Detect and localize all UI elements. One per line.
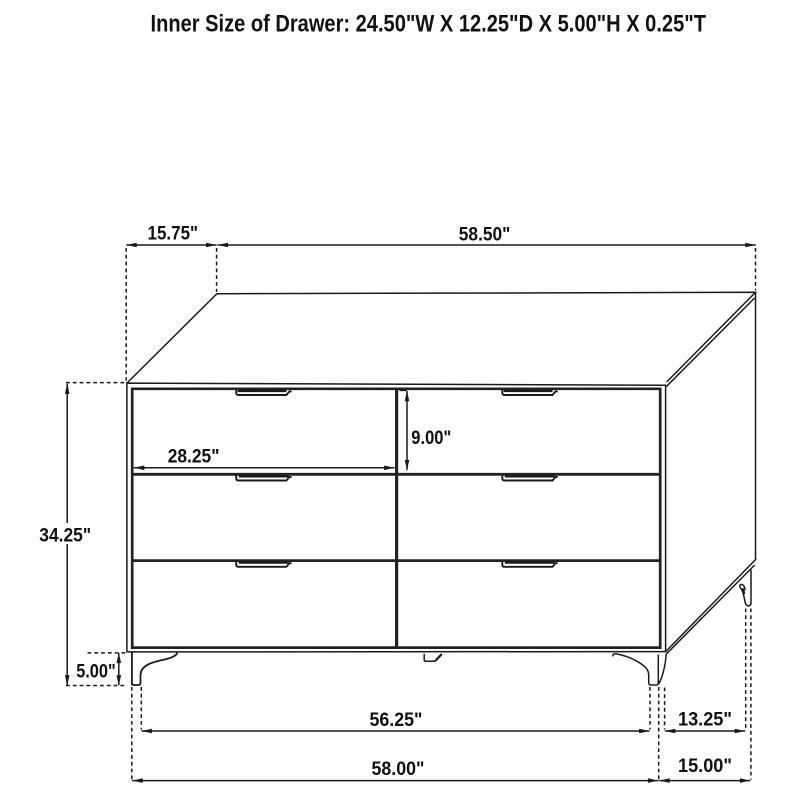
svg-text:5.00": 5.00" <box>76 661 116 682</box>
svg-text:15.75": 15.75" <box>148 224 199 245</box>
svg-text:58.50": 58.50" <box>459 224 511 245</box>
svg-text:58.00": 58.00" <box>372 759 425 780</box>
svg-text:13.25": 13.25" <box>678 709 732 730</box>
svg-text:15.00": 15.00" <box>678 756 732 777</box>
svg-text:34.25": 34.25" <box>39 525 91 546</box>
svg-text:9.00": 9.00" <box>411 428 451 449</box>
svg-text:Inner Size of Drawer: 24.50"W: Inner Size of Drawer: 24.50"W X 12.25"D … <box>151 10 707 37</box>
svg-text:28.25": 28.25" <box>168 447 220 468</box>
svg-text:56.25": 56.25" <box>370 710 423 731</box>
